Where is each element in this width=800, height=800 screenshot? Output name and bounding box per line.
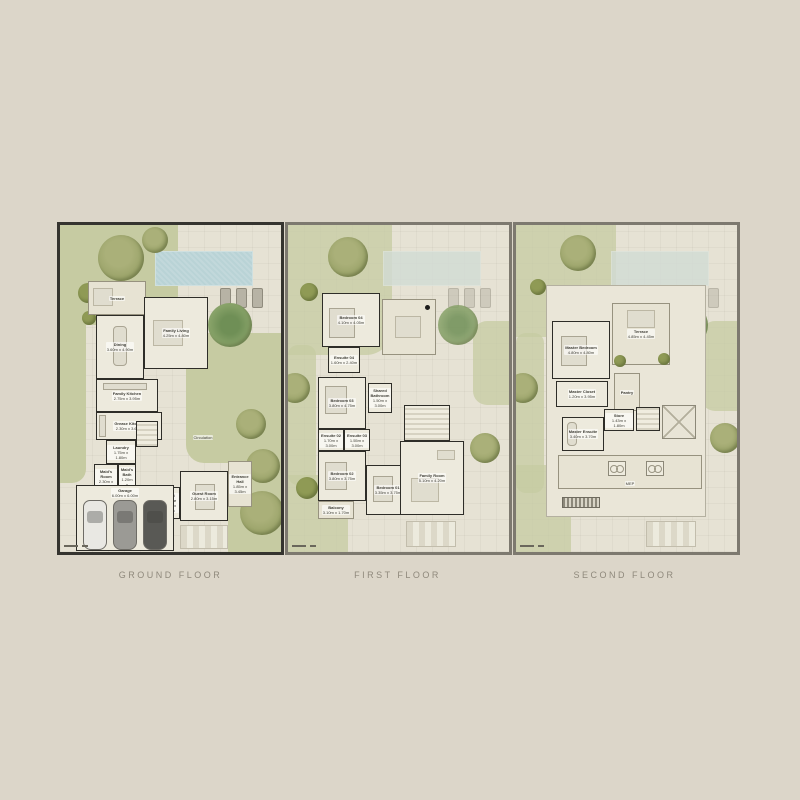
room-family-living: Family Living4.25m x 4.80m bbox=[144, 297, 208, 369]
sun-lounger bbox=[708, 288, 719, 308]
tree bbox=[98, 235, 144, 281]
tree bbox=[710, 423, 740, 453]
lawn bbox=[288, 345, 316, 485]
lawn bbox=[60, 315, 86, 483]
stair bbox=[636, 407, 660, 431]
room-circulation: Circulation bbox=[160, 412, 246, 462]
ac-unit bbox=[608, 461, 626, 476]
stair bbox=[404, 405, 450, 441]
tree bbox=[560, 235, 596, 271]
ac-unit bbox=[646, 461, 664, 476]
room-family-room: Family Room5.10m x 4.20m bbox=[400, 441, 464, 515]
scale-bar bbox=[64, 545, 88, 547]
shrub bbox=[300, 283, 318, 301]
room-dining: Dining3.60m x 4.90m bbox=[96, 315, 144, 379]
car bbox=[83, 500, 107, 550]
entry-steps bbox=[180, 525, 228, 549]
potted-plant bbox=[614, 355, 626, 367]
plan-second-floor: Master Bedroom4.80m x 4.80m Terrace4.85m… bbox=[513, 222, 740, 555]
room-bedroom-04: Bedroom 044.10m x 4.05m bbox=[322, 293, 380, 347]
plan-first-floor: Bedroom 044.10m x 4.05m Ensuite 041.60m … bbox=[285, 222, 512, 555]
roof-mep-area: MEP bbox=[558, 455, 702, 489]
plan-ground-floor: Terrace Family Living4.25m x 4.80m Dinin… bbox=[57, 222, 284, 555]
sun-lounger bbox=[464, 288, 475, 308]
room-shared-bathroom: Shared Bathroom1.50m x 3.00m bbox=[368, 383, 392, 413]
room-family-kitchen: Family Kitchen2.75m x 3.95m bbox=[96, 379, 158, 412]
skylight bbox=[662, 405, 696, 439]
room-pantry: Pantry bbox=[614, 373, 640, 411]
room-ensuite-04: Ensuite 041.60m x 2.40m bbox=[328, 347, 360, 373]
floor-captions: GROUND FLOOR FIRST FLOOR SECOND FLOOR bbox=[57, 570, 740, 580]
roof-louver bbox=[562, 497, 600, 508]
room-ensuite-02: Ensuite 021.70m x 3.00m bbox=[318, 429, 344, 451]
room-bedroom-03: Bedroom 033.80m x 4.75m bbox=[318, 377, 366, 429]
room-ensuite-03: Ensuite 031.55m x 3.00m bbox=[344, 429, 370, 451]
room-terrace: Terrace bbox=[88, 281, 146, 315]
armchair bbox=[437, 450, 455, 460]
tree bbox=[328, 237, 368, 277]
pergola bbox=[646, 521, 696, 547]
caption-ground-floor: GROUND FLOOR bbox=[57, 570, 284, 580]
palm-tree bbox=[438, 305, 478, 345]
lawn bbox=[473, 321, 512, 405]
pool bbox=[155, 251, 253, 286]
sun-lounger bbox=[480, 288, 491, 308]
tree bbox=[142, 227, 168, 253]
room-entrance-hall: Entrance Hall1.85m x 3.45m bbox=[228, 461, 252, 507]
sun-lounger bbox=[252, 288, 263, 308]
pool-ghosted bbox=[383, 251, 481, 286]
stair bbox=[136, 421, 158, 447]
pool-ghosted bbox=[611, 251, 709, 286]
caption-first-floor: FIRST FLOOR bbox=[284, 570, 511, 580]
car bbox=[143, 500, 167, 550]
scale-bar bbox=[292, 545, 316, 547]
room-master-closet: Master Closet1.20m x 3.95m bbox=[556, 381, 608, 407]
sofa-below bbox=[395, 316, 421, 338]
scale-bar bbox=[520, 545, 544, 547]
floor-plans-row: Terrace Family Living4.25m x 4.80m Dinin… bbox=[57, 222, 740, 555]
room-garage: Garage6.00m x 6.00m bbox=[76, 485, 174, 551]
kitchen-island bbox=[103, 383, 147, 390]
room-store: Store1.43m x 1.80m bbox=[604, 409, 634, 431]
shrub bbox=[530, 279, 546, 295]
outdoor-sofa bbox=[627, 310, 655, 328]
room-guest-room: Guest Room2.80m x 3.15m bbox=[180, 471, 228, 521]
palm-tree bbox=[208, 303, 252, 347]
caption-second-floor: SECOND FLOOR bbox=[511, 570, 738, 580]
room-master-ensuite: Master Ensuite3.40m x 3.70m bbox=[562, 417, 604, 451]
room-laundry: Laundry1.75m x 1.80m bbox=[106, 440, 136, 464]
car bbox=[113, 500, 137, 550]
kitchen-counter bbox=[99, 415, 106, 437]
room-bedroom-02: Bedroom 023.80m x 3.75m bbox=[318, 451, 366, 501]
room-balcony: Balcony3.10m x 1.70m bbox=[318, 501, 354, 519]
pergola bbox=[406, 521, 456, 547]
potted-plant bbox=[658, 353, 670, 365]
lawn bbox=[701, 321, 740, 411]
tree bbox=[470, 433, 500, 463]
room-master-bedroom: Master Bedroom4.80m x 4.80m bbox=[552, 321, 610, 379]
shrub bbox=[296, 477, 318, 499]
room-double-height-void bbox=[382, 299, 436, 355]
column bbox=[425, 305, 430, 310]
